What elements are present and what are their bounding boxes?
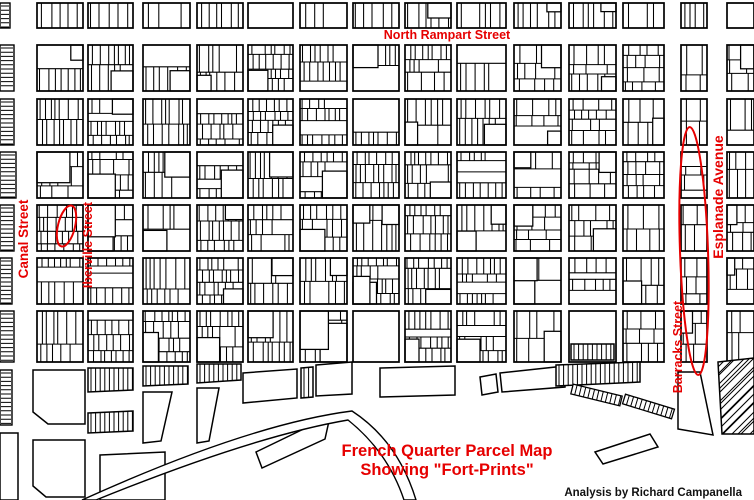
map-title-line2: Showing "Fort-Prints" [360,461,533,479]
street-label-canal: Canal Street [16,199,31,278]
parcel-map-svg: North Rampart Street Canal Street Ibervi… [0,0,754,500]
map-title: French Quarter Parcel Map Showing "Fort-… [342,442,553,479]
street-label-esplanade: Esplanade Avenue [710,135,726,259]
street-label-north-rampart: North Rampart Street [384,28,511,42]
map-title-line1: French Quarter Parcel Map [342,442,553,460]
parcel-blocks-layer [37,3,754,362]
street-label-barracks: Barracks Street [671,300,685,393]
french-quarter-parcel-map: North Rampart Street Canal Street Ibervi… [0,0,754,500]
credit-text: Analysis by Richard Campanella [564,487,742,499]
street-label-iberville: Iberville Street [81,201,95,288]
